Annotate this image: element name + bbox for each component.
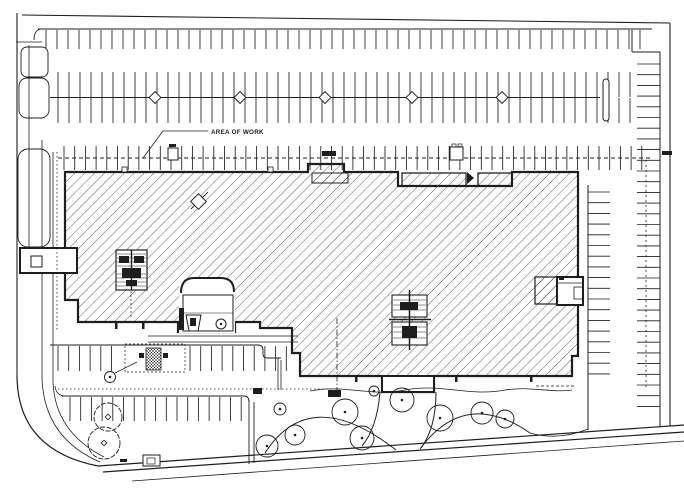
entry-canopy [402, 173, 466, 186]
tree-center-dot [266, 445, 269, 448]
loading-dock [20, 248, 77, 273]
bed-edge-line [421, 392, 436, 448]
bed-edge-line [115, 362, 137, 373]
annotation-mark [253, 388, 262, 394]
aisle-diamond-marker [319, 92, 331, 104]
dock-equipment [31, 256, 42, 267]
tree-center-dot [294, 434, 297, 437]
aisle-diamond-marker [406, 92, 418, 104]
wall-stub [455, 376, 458, 382]
shrub [94, 403, 122, 431]
bed-edge-line [362, 392, 380, 446]
equipment-pad [105, 344, 186, 383]
street-edge-line [103, 432, 684, 472]
site-plan-sheet: AREA OF WORK [0, 0, 684, 492]
wall-stub [142, 322, 145, 329]
tree-center-dot [481, 412, 484, 415]
bed-edge-line [310, 388, 572, 392]
wall-stub [115, 322, 118, 329]
door-flag-mark [467, 172, 474, 184]
annotation-mark [328, 390, 341, 397]
parking-edge-curve [244, 396, 249, 402]
wall-pilaster [268, 167, 273, 172]
annotation-mark [322, 151, 336, 156]
parking-edge-curve [55, 386, 64, 396]
parking-edge-curve [258, 345, 281, 358]
annotation-mark [169, 144, 176, 147]
stairwell-east [389, 290, 431, 350]
entry-canopy [312, 173, 348, 183]
boundary-line [22, 15, 670, 23]
shrub-center-mark [101, 440, 107, 446]
landscape-island [19, 78, 49, 118]
tree-center-dot [373, 390, 376, 393]
tree-center-dot [344, 411, 347, 414]
shrub-center-mark [105, 414, 111, 420]
aisle-diamond-marker [234, 92, 246, 104]
aisle-diamond-marker [149, 92, 161, 104]
building-group [20, 164, 578, 392]
boundary-curb-curve [53, 382, 104, 457]
boundary-curb-curve [34, 29, 40, 40]
area-of-work-label: AREA OF WORK [211, 129, 264, 136]
tree-center-dot [401, 399, 404, 402]
landscape-island [18, 149, 50, 247]
site-plan-drawing: AREA OF WORK [0, 0, 684, 492]
wall-pilaster [122, 167, 127, 172]
side-entrance [535, 277, 583, 305]
utility-box [168, 148, 178, 160]
shrub [88, 427, 120, 459]
stairwell-west [116, 250, 147, 290]
entry-canopy [478, 173, 512, 186]
street-group [98, 425, 684, 481]
parking-island-slot [603, 79, 609, 121]
annotation-mark [120, 459, 127, 462]
area-of-work-callout: AREA OF WORK [211, 129, 264, 136]
boundary-curb-curve [17, 375, 98, 466]
wall-stub [530, 376, 533, 382]
wall-stub [355, 376, 358, 382]
utility-box [143, 455, 160, 466]
landscape-island [21, 47, 48, 77]
main-entrance-vestibule [179, 278, 235, 333]
utility-box [450, 147, 463, 160]
annotation-mark [662, 151, 672, 155]
street-edge-line [132, 441, 684, 481]
tree-center-dot [361, 437, 364, 440]
tree-center-dot [279, 408, 282, 411]
street-edge-line [98, 425, 684, 466]
tree-center-dot [504, 418, 507, 421]
tree-center-dot [439, 417, 442, 420]
